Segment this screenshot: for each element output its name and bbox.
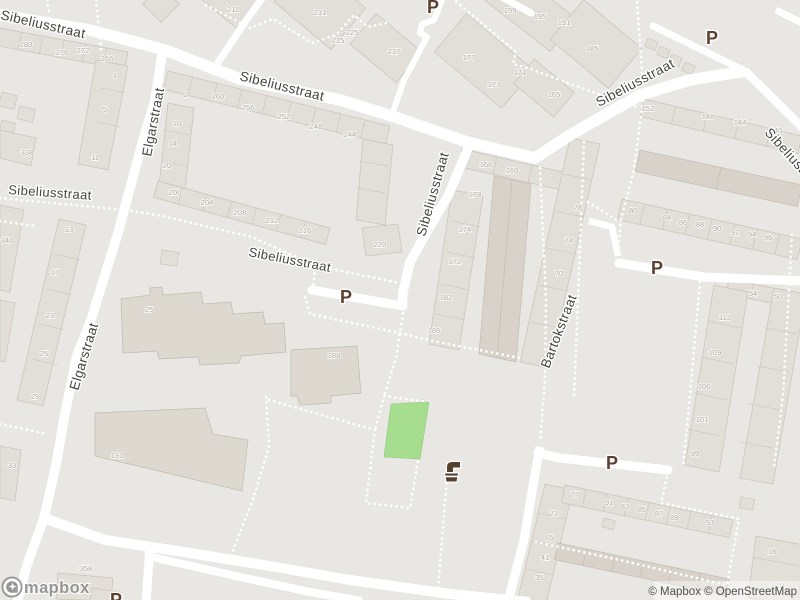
svg-text:84: 84 [663, 213, 671, 222]
svg-text:21: 21 [46, 311, 54, 320]
svg-text:340: 340 [1, 236, 14, 245]
svg-text:29: 29 [31, 392, 39, 401]
svg-text:P: P [706, 28, 718, 48]
svg-text:188: 188 [328, 351, 341, 360]
svg-text:87: 87 [655, 509, 663, 518]
svg-text:220: 220 [374, 240, 387, 249]
svg-text:165: 165 [548, 90, 561, 99]
svg-text:173: 173 [488, 80, 501, 89]
svg-text:33: 33 [8, 461, 16, 470]
svg-text:166: 166 [480, 160, 493, 169]
svg-text:252: 252 [278, 112, 291, 121]
svg-text:P: P [606, 453, 618, 473]
svg-text:171: 171 [514, 68, 527, 77]
svg-text:41: 41 [541, 553, 549, 562]
svg-text:260: 260 [212, 92, 225, 101]
svg-text:244: 244 [344, 130, 357, 139]
svg-text:13: 13 [65, 225, 73, 234]
svg-text:200: 200 [169, 188, 182, 197]
svg-text:5: 5 [103, 105, 107, 114]
svg-text:182: 182 [440, 293, 453, 302]
svg-text:338: 338 [21, 148, 34, 157]
svg-text:85: 85 [638, 505, 646, 514]
svg-text:208: 208 [234, 208, 247, 217]
svg-text:96: 96 [764, 233, 772, 242]
svg-text:185: 185 [586, 44, 599, 53]
svg-text:231: 231 [314, 8, 327, 17]
svg-text:216: 216 [299, 226, 312, 235]
svg-text:20: 20 [163, 161, 171, 170]
svg-text:74: 74 [565, 236, 573, 245]
svg-text:186: 186 [428, 326, 441, 335]
svg-text:93: 93 [706, 518, 714, 527]
svg-text:204: 204 [201, 198, 214, 207]
svg-text:11: 11 [91, 153, 99, 162]
svg-text:191: 191 [558, 18, 571, 27]
svg-text:17: 17 [51, 268, 59, 277]
svg-text:272: 272 [77, 46, 90, 55]
svg-text:177: 177 [463, 53, 476, 62]
svg-text:211: 211 [227, 5, 239, 14]
svg-text:92: 92 [731, 228, 739, 237]
svg-text:113: 113 [719, 313, 731, 322]
svg-text:1: 1 [113, 71, 117, 80]
svg-text:101: 101 [696, 415, 709, 424]
svg-text:2: 2 [184, 90, 188, 99]
svg-text:195: 195 [534, 12, 547, 21]
svg-text:25: 25 [40, 349, 48, 358]
svg-text:109: 109 [709, 348, 722, 357]
svg-text:256: 256 [242, 103, 255, 112]
svg-text:25: 25 [145, 305, 153, 314]
svg-text:217: 217 [388, 47, 401, 56]
svg-text:358: 358 [80, 564, 93, 573]
svg-text:P: P [427, 0, 439, 17]
svg-text:89: 89 [670, 513, 678, 522]
svg-text:65: 65 [545, 533, 553, 542]
svg-text:160: 160 [506, 166, 519, 175]
svg-text:14: 14 [169, 139, 177, 148]
svg-text:78: 78 [574, 203, 582, 212]
svg-text:172: 172 [449, 257, 462, 266]
svg-text:152: 152 [642, 104, 655, 113]
svg-text:77: 77 [571, 490, 579, 499]
svg-text:225: 225 [346, 28, 359, 37]
svg-text:© Mapbox © OpenStreetMap: © Mapbox © OpenStreetMap [648, 586, 797, 598]
svg-text:174: 174 [459, 225, 472, 234]
svg-text:18: 18 [768, 547, 776, 556]
svg-text:131: 131 [111, 451, 124, 460]
svg-text:280: 280 [20, 40, 33, 49]
svg-text:10: 10 [173, 119, 181, 128]
svg-text:248: 248 [310, 122, 323, 131]
svg-text:91: 91 [605, 498, 613, 507]
svg-text:54: 54 [749, 289, 757, 298]
svg-text:106: 106 [698, 382, 711, 391]
svg-text:90: 90 [713, 224, 721, 233]
svg-text:199: 199 [504, 6, 517, 15]
svg-text:86: 86 [679, 218, 687, 227]
svg-text:P: P [110, 590, 122, 600]
svg-text:70: 70 [555, 269, 563, 278]
svg-text:94: 94 [748, 230, 756, 239]
svg-text:144: 144 [734, 118, 747, 127]
svg-text:276: 276 [56, 48, 69, 57]
svg-text:P: P [340, 287, 352, 307]
svg-text:83: 83 [621, 502, 629, 511]
svg-text:99: 99 [691, 449, 699, 458]
svg-text:35: 35 [535, 573, 543, 582]
svg-text:71: 71 [550, 509, 558, 518]
svg-text:215: 215 [332, 36, 345, 45]
svg-text:178: 178 [469, 190, 482, 199]
svg-text:50: 50 [774, 292, 782, 301]
svg-text:mapbox: mapbox [24, 579, 90, 597]
svg-text:266: 266 [101, 54, 114, 63]
svg-text:212: 212 [266, 216, 279, 225]
svg-text:80: 80 [629, 206, 637, 215]
svg-text:P: P [651, 258, 663, 278]
svg-text:148: 148 [702, 112, 715, 121]
svg-text:88: 88 [696, 220, 704, 229]
